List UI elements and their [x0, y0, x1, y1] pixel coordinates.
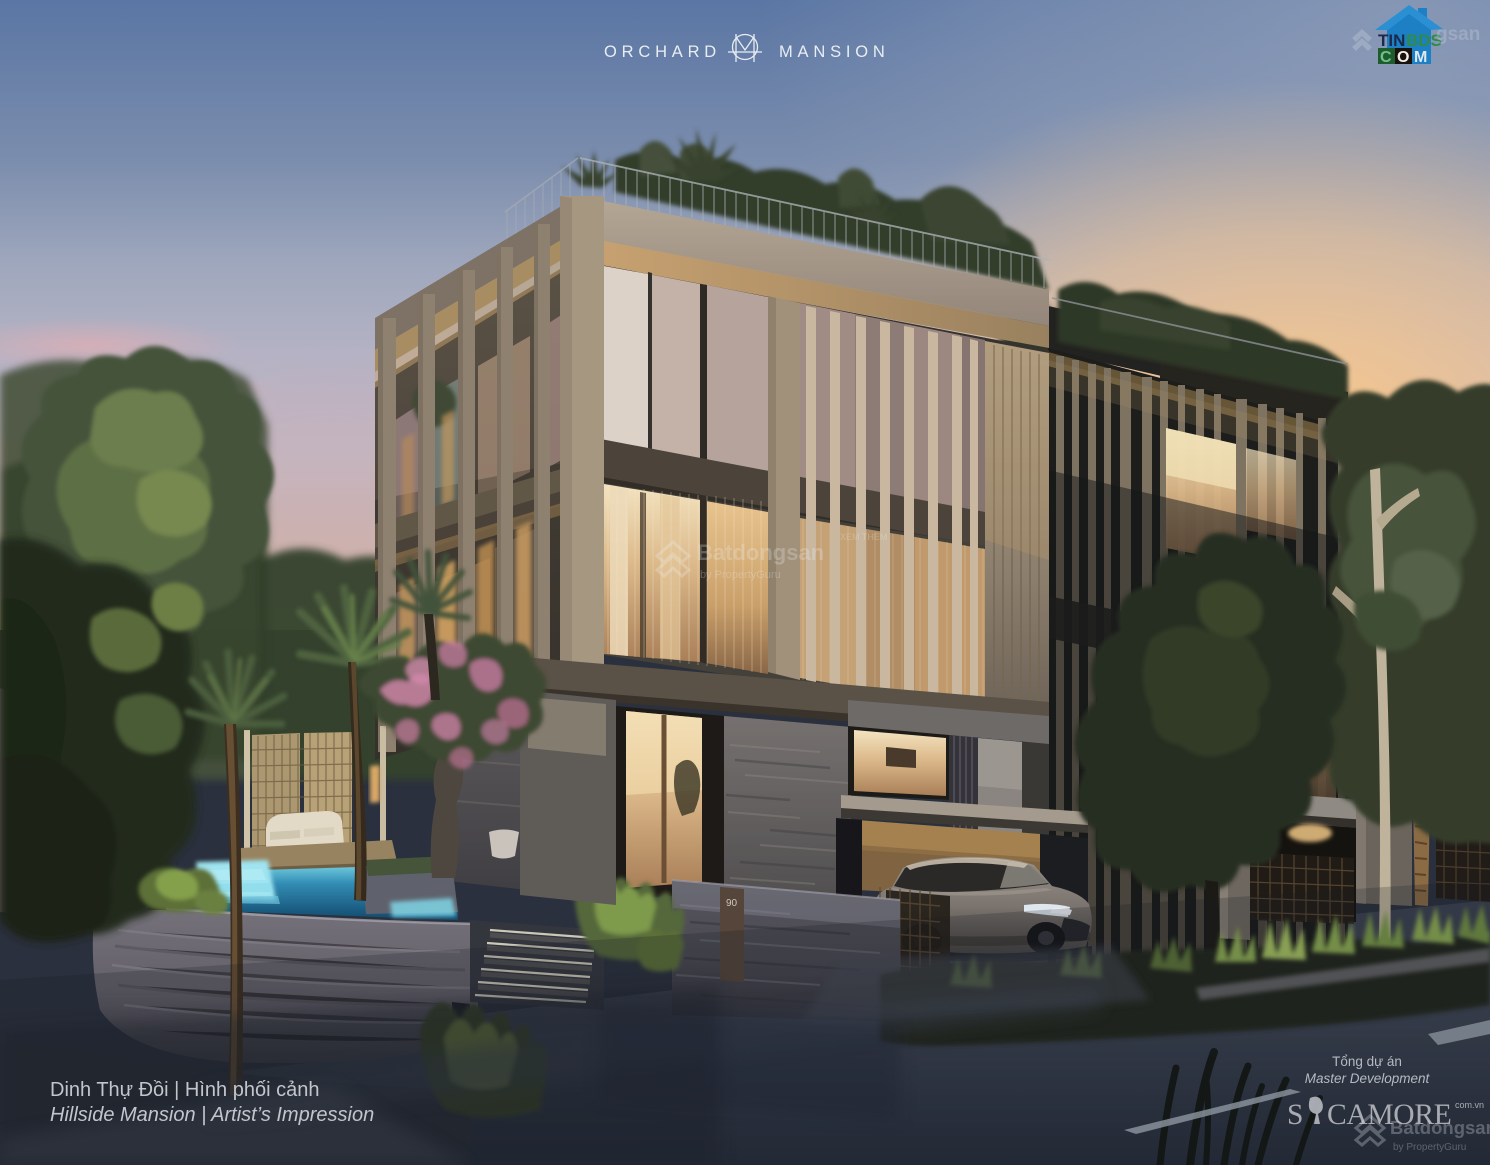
svg-text:Dinh Thự Đồi | Hình phối cảnh: Dinh Thự Đồi | Hình phối cảnh — [50, 1079, 319, 1101]
svg-text:Batdongsan: Batdongsan — [697, 540, 824, 565]
svg-text:MANSION: MANSION — [779, 43, 890, 61]
svg-text:C: C — [1380, 49, 1392, 66]
svg-text:O: O — [1397, 49, 1409, 66]
svg-text:ORCHARD: ORCHARD — [604, 43, 721, 61]
svg-text:Hillside Mansion | Artist’s I: Hillside Mansion | Artist’s Impression — [50, 1104, 374, 1126]
svg-text:com.vn: com.vn — [1455, 1100, 1484, 1110]
svg-text:Master Development: Master Development — [1305, 1071, 1431, 1086]
svg-text:gsan: gsan — [1436, 24, 1480, 45]
svg-text:M: M — [1414, 49, 1427, 66]
svg-text:TIN: TIN — [1378, 31, 1405, 50]
svg-text:S: S — [1287, 1099, 1303, 1131]
svg-text:XEM THEM: XEM THEM — [840, 532, 887, 542]
svg-text:Tổng dự án: Tổng dự án — [1332, 1054, 1402, 1069]
svg-text:Batdongsan: Batdongsan — [1390, 1117, 1490, 1138]
svg-text:90: 90 — [726, 898, 738, 909]
svg-text:by PropertyGuru: by PropertyGuru — [1393, 1142, 1466, 1153]
svg-text:by PropertyGuru: by PropertyGuru — [700, 569, 781, 581]
